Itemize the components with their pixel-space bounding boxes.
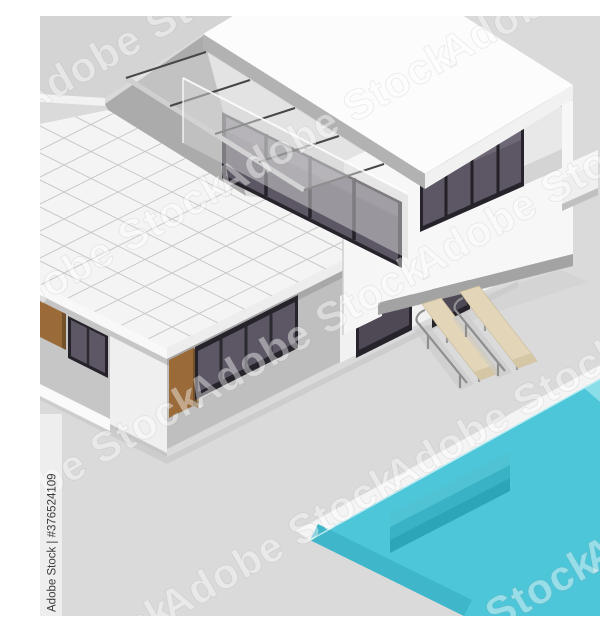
stock-id-watermark: Adobe Stock | #376524109: [40, 414, 62, 616]
stock-id-text: Adobe Stock | #376524109: [47, 473, 59, 612]
stock-image: Adobe StockAdobe StockAdobe StockAdobe S…: [40, 16, 600, 616]
isometric-house-illustration: Adobe StockAdobe StockAdobe StockAdobe S…: [40, 16, 600, 616]
wood-panel-edge: [62, 312, 66, 350]
